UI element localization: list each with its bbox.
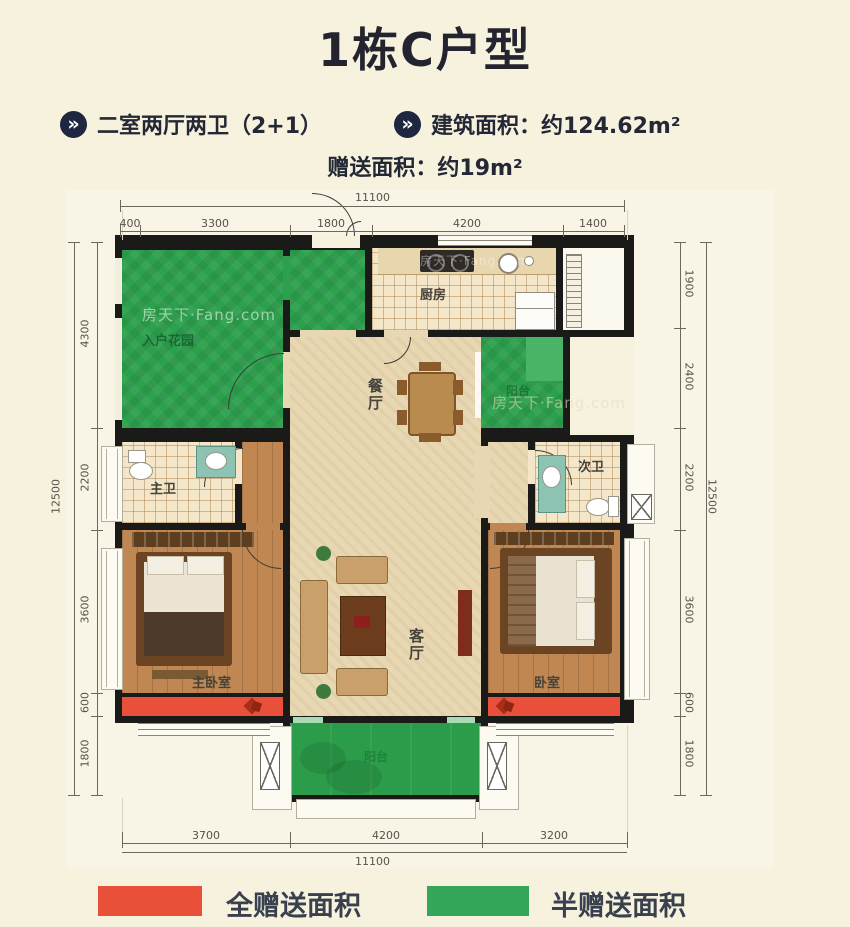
dim-tick [91, 428, 103, 429]
pillar-icon [487, 742, 507, 790]
legend-swatch-full [98, 886, 202, 916]
label-second-bath: 次卫 [578, 456, 604, 475]
fridge-line [515, 308, 553, 309]
dim-tick [624, 225, 625, 237]
window-bay [624, 538, 650, 700]
dim-tick [290, 832, 291, 848]
watermark: 房天下·Fang.com [492, 392, 626, 413]
dim-bottom-seg-0: 3700 [176, 829, 236, 842]
dim-line-top-total [120, 206, 625, 207]
chair-icon [419, 362, 441, 371]
chair-icon [453, 380, 463, 395]
slider-door [475, 352, 481, 418]
label-master-bedroom: 主卧室 [192, 672, 231, 691]
dim-right-seg-3: 3600 [683, 580, 696, 640]
opening [490, 523, 526, 530]
dim-left-seg-4: 1800 [79, 724, 92, 784]
window-lines [106, 449, 118, 519]
wall-window-gap [115, 318, 122, 420]
dim-right-seg-1: 2400 [683, 347, 696, 407]
dim-line-right-segments [680, 242, 681, 795]
window-sill [496, 723, 614, 736]
fridge-icon [515, 292, 555, 330]
balcony-sill [447, 717, 475, 723]
tv-cabinet [458, 590, 472, 656]
plant-icon [316, 546, 331, 561]
opening [283, 352, 290, 408]
opening [246, 523, 280, 530]
label-dining: 餐厅 [365, 378, 386, 412]
dim-top-seg-1: 3300 [185, 217, 245, 230]
pillow [187, 556, 224, 575]
arrow-bullet-icon: » [60, 111, 87, 138]
opening [474, 446, 490, 518]
chair-icon [419, 433, 441, 442]
dining-table [408, 372, 456, 436]
chair-icon [397, 380, 407, 395]
room-corridor-left [242, 442, 283, 523]
dim-line-left-segments [97, 242, 98, 795]
table-decor [354, 616, 370, 628]
floorplan-page: 1栋C户型 » 二室两厅两卫（2+1） » 建筑面积：约124.62m² 赠送面… [0, 0, 850, 927]
dim-top-total: 11100 [330, 191, 415, 204]
dim-tick [91, 795, 103, 796]
bed-blanket [144, 612, 224, 656]
opening [384, 330, 428, 337]
pillow [576, 560, 595, 598]
feature-area-label: 建筑面积：约124.62m² [431, 108, 680, 140]
toilet-tank [608, 496, 619, 517]
balcony-annex [296, 799, 476, 819]
window-sill [438, 235, 532, 246]
label-entry-garden: 入户花园 [142, 330, 194, 349]
dim-tick [674, 328, 686, 329]
dim-tick [700, 795, 712, 796]
dim-tick [120, 200, 121, 212]
dim-bottom-total: 11100 [330, 855, 415, 868]
room-corridor-right [488, 442, 528, 523]
label-living: 客厅 [406, 628, 427, 662]
dim-tick [68, 242, 80, 243]
wardrobe [494, 532, 614, 545]
dim-top-seg-0: 400 [112, 217, 148, 230]
dim-left-total: 12500 [50, 467, 63, 527]
toilet-icon [586, 498, 610, 516]
legend-swatch-half [427, 886, 529, 916]
dim-right-seg-2: 2200 [683, 448, 696, 508]
label-master-bath: 主卫 [150, 478, 176, 497]
dim-right-seg-0: 1900 [683, 254, 696, 314]
dim-tick [91, 242, 103, 243]
label-kitchen: 厨房 [420, 284, 446, 303]
flue-hatch [566, 254, 582, 328]
bonus-area-label: 赠送面积：约19m² [0, 150, 850, 182]
dim-tick [122, 832, 123, 848]
sofa-chair [336, 668, 388, 696]
dim-right-seg-5: 1800 [683, 724, 696, 784]
chair-icon [397, 410, 407, 425]
exterior-cutout [570, 337, 634, 435]
dim-tick [700, 242, 712, 243]
extension-line [627, 726, 628, 838]
dim-tick [674, 428, 686, 429]
dim-tick [91, 693, 103, 694]
sofa-main [300, 580, 328, 674]
opening [283, 256, 290, 300]
dim-tick [482, 832, 483, 848]
pillow [147, 556, 184, 575]
dim-line-left-total [74, 242, 75, 795]
dim-tick [91, 530, 103, 531]
window-lines [106, 551, 118, 687]
dim-tick [68, 795, 80, 796]
room-entry-vestibule [290, 250, 365, 330]
chair-icon [453, 410, 463, 425]
feature-layout: » 二室两厅两卫（2+1） [60, 108, 322, 140]
legend-label-full: 全赠送面积 [226, 884, 361, 923]
arrow-bullet-icon: » [394, 111, 421, 138]
page-title: 1栋C户型 [0, 14, 850, 80]
label-bedroom: 卧室 [534, 672, 560, 691]
dim-bottom-seg-1: 4200 [356, 829, 416, 842]
dim-tick [290, 225, 291, 237]
bed-runner [508, 556, 536, 646]
window-bay [101, 446, 123, 522]
window-lines [629, 541, 645, 697]
dim-tick [372, 225, 373, 237]
plant-icon [316, 684, 331, 699]
sofa-chair [336, 556, 388, 584]
dim-left-seg-2: 3600 [79, 580, 92, 640]
toilet-tank [128, 450, 146, 463]
opening [300, 330, 356, 337]
watermark: 房天下·Fang.com [142, 304, 276, 325]
basin-icon [542, 466, 561, 488]
label-balcony-bottom: 阳台 [364, 748, 388, 765]
dim-tick [674, 530, 686, 531]
window-bay [101, 548, 123, 690]
dim-top-seg-3: 4200 [437, 217, 497, 230]
window-sill [138, 723, 270, 736]
legend-label-half: 半赠送面积 [551, 884, 686, 923]
watermark: 房天下·Fang.com [420, 252, 530, 269]
dim-top-seg-2: 1800 [301, 217, 361, 230]
dim-line-bottom-segments [122, 843, 627, 844]
dim-left-seg-0: 4300 [79, 304, 92, 364]
entry-door-opening [312, 235, 360, 248]
feature-layout-label: 二室两厅两卫（2+1） [97, 108, 322, 140]
feature-area: » 建筑面积：约124.62m² [394, 108, 680, 140]
pillow [576, 602, 595, 640]
dim-tick [674, 795, 686, 796]
dim-line-bottom-total [122, 852, 627, 853]
dim-tick [91, 716, 103, 717]
balcony-plant-shape [326, 760, 382, 794]
wardrobe [132, 532, 254, 547]
opening [528, 450, 535, 484]
pillar-icon [260, 742, 280, 790]
dim-tick [624, 200, 625, 212]
dim-tick [627, 832, 628, 848]
dim-tick [674, 242, 686, 243]
basin-icon [205, 452, 227, 470]
dim-top-seg-4: 1400 [563, 217, 623, 230]
wall-window-gap [115, 258, 122, 304]
dim-bottom-seg-2: 3200 [524, 829, 584, 842]
balcony-side-highlight [526, 337, 563, 381]
shaft-icon [631, 494, 652, 520]
extension-line [627, 210, 628, 240]
balcony-sill [293, 717, 323, 723]
dim-right-total: 12500 [706, 467, 719, 527]
dim-left-seg-1: 2200 [79, 448, 92, 508]
